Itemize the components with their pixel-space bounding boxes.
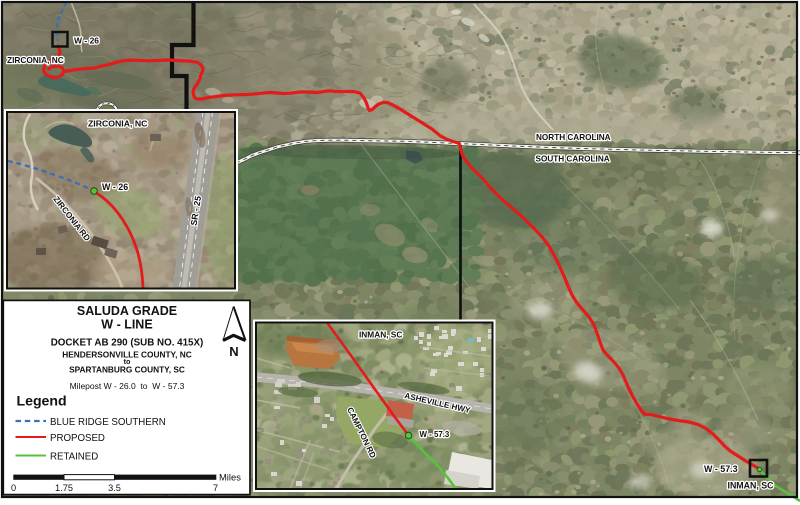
svg-text:W - 26: W - 26	[74, 36, 99, 46]
svg-text:ZIRCONIA, NC: ZIRCONIA, NC	[7, 55, 64, 65]
svg-text:ZIRCONIA, NC: ZIRCONIA, NC	[88, 119, 148, 129]
svg-text:W - 26: W - 26	[102, 182, 128, 192]
svg-text:INMAN, SC: INMAN, SC	[728, 481, 775, 491]
svg-text:W - 57.3: W - 57.3	[704, 464, 738, 474]
svg-text:NORTH CAROLINA: NORTH CAROLINA	[536, 133, 611, 142]
svg-text:SOUTH CAROLINA: SOUTH CAROLINA	[536, 155, 610, 164]
